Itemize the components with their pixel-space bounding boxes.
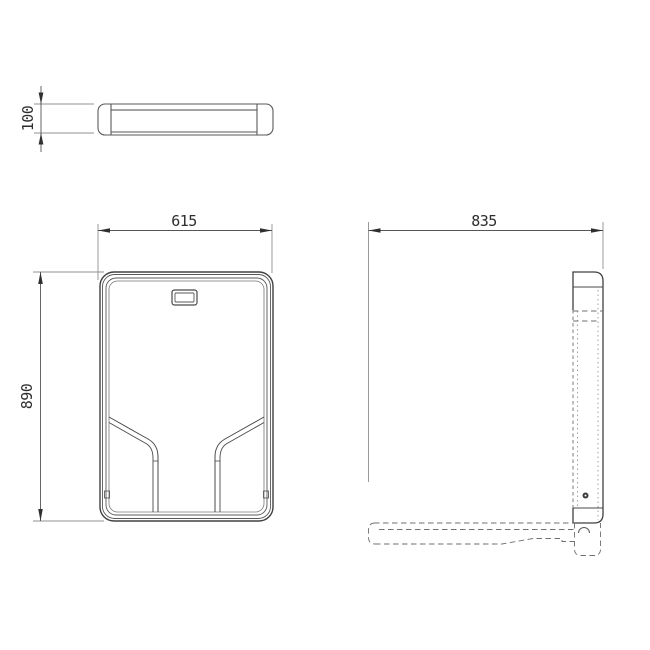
dimension-890: 890 [18,272,104,521]
front-view-outline [100,272,273,521]
latch-handle [172,290,197,305]
top-view [98,104,273,135]
folded-position-outline [369,523,601,556]
right-leg-tube [215,417,264,512]
drawing-svg: 100 [0,0,650,650]
arrowhead-icon [591,228,603,233]
arrowhead-icon [38,272,43,284]
left-leg-tube [109,417,158,512]
arrowhead-icon [369,228,381,233]
arrowhead-icon [260,228,272,233]
technical-drawing-canvas: 100 [0,0,650,650]
dimension-100: 100 [19,86,94,152]
dimension-615: 615 [98,212,272,280]
folded-bracket-outline [575,523,601,556]
arrowhead-icon [39,93,44,105]
hinge-arc-icon [579,528,590,534]
arrowhead-icon [39,133,44,145]
dimension-835: 835 [369,212,604,482]
dimension-835-label: 835 [471,212,497,230]
dimension-890-label: 890 [18,383,36,409]
arrowhead-icon [38,509,43,521]
dimension-100-label: 100 [19,105,37,131]
top-view-outline [98,104,273,135]
front-view [100,272,273,521]
pivot-screw-highlight [585,495,587,497]
dimension-615-label: 615 [171,212,197,230]
side-view [573,272,603,523]
arrowhead-icon [98,228,110,233]
